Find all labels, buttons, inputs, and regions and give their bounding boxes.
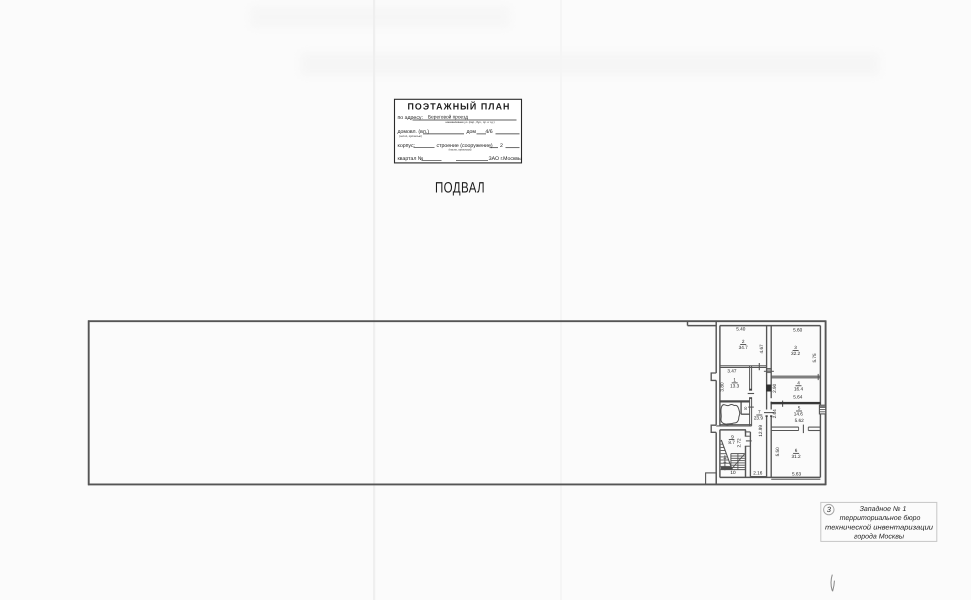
svg-text:9: 9 <box>731 434 734 439</box>
svg-text:4: 4 <box>797 380 800 385</box>
svg-text:7: 7 <box>758 410 761 415</box>
svg-text:5.50: 5.50 <box>775 447 780 457</box>
svg-text:технической инвентаризации: технической инвентаризации <box>825 523 933 531</box>
svg-text:34.7: 34.7 <box>739 345 749 350</box>
svg-text:5.63: 5.63 <box>792 471 802 476</box>
svg-text:4.67: 4.67 <box>759 344 764 354</box>
svg-text:6: 6 <box>795 448 798 453</box>
svg-text:8.7: 8.7 <box>728 440 735 445</box>
svg-text:5.62: 5.62 <box>795 418 805 423</box>
svg-text:5: 5 <box>798 406 801 411</box>
svg-text:5.40: 5.40 <box>736 326 746 331</box>
svg-text:2: 2 <box>742 339 745 344</box>
svg-text:1: 1 <box>733 378 736 383</box>
svg-text:3.47: 3.47 <box>727 368 737 373</box>
svg-text:23.9: 23.9 <box>754 416 764 421</box>
svg-text:12.99: 12.99 <box>758 425 763 437</box>
svg-text:31.2: 31.2 <box>792 454 802 459</box>
svg-text:ПОЭТАЖНЫЙ ПЛАН: ПОЭТАЖНЫЙ ПЛАН <box>408 100 511 111</box>
svg-text:16.4: 16.4 <box>794 386 804 391</box>
svg-text:5.64: 5.64 <box>793 395 803 400</box>
svg-text:32.2: 32.2 <box>791 351 801 356</box>
svg-text:13.3: 13.3 <box>730 384 740 389</box>
svg-text:корпус:: корпус: <box>398 143 415 149</box>
svg-text:2.72: 2.72 <box>736 438 741 448</box>
svg-text:10: 10 <box>730 470 736 475</box>
svg-text:2.64: 2.64 <box>772 409 777 419</box>
svg-text:4/6: 4/6 <box>485 129 492 135</box>
svg-text:(число, прописью): (число, прописью) <box>449 149 472 152</box>
svg-text:8: 8 <box>744 406 747 411</box>
svg-text:Береговой проезд: Береговой проезд <box>428 114 468 120</box>
svg-text:наименование ул. (пер., бул.,: наименование ул. (пер., бул., пр. и т.д.… <box>446 121 495 124</box>
svg-text:ЗАО г.Москвы: ЗАО г.Москвы <box>489 156 523 162</box>
svg-text:Западное № 1: Западное № 1 <box>860 505 907 513</box>
svg-text:14.6: 14.6 <box>794 412 804 417</box>
svg-text:5.75: 5.75 <box>812 353 817 363</box>
svg-text:(число, прописью): (число, прописью) <box>399 135 422 138</box>
svg-text:5.60: 5.60 <box>793 327 803 332</box>
svg-text:территориальное бюро: территориальное бюро <box>840 514 921 522</box>
svg-text:квартал №: квартал № <box>398 156 424 162</box>
svg-text:ПОДВАЛ: ПОДВАЛ <box>435 180 485 197</box>
svg-text:2.90: 2.90 <box>772 383 777 393</box>
svg-text:2.16: 2.16 <box>753 471 763 476</box>
svg-text:2: 2 <box>500 143 503 149</box>
svg-text:дом: дом <box>467 129 477 135</box>
svg-text:3: 3 <box>794 345 797 350</box>
svg-text:города Москвы: города Москвы <box>854 533 905 541</box>
svg-text:3.80: 3.80 <box>720 382 725 392</box>
